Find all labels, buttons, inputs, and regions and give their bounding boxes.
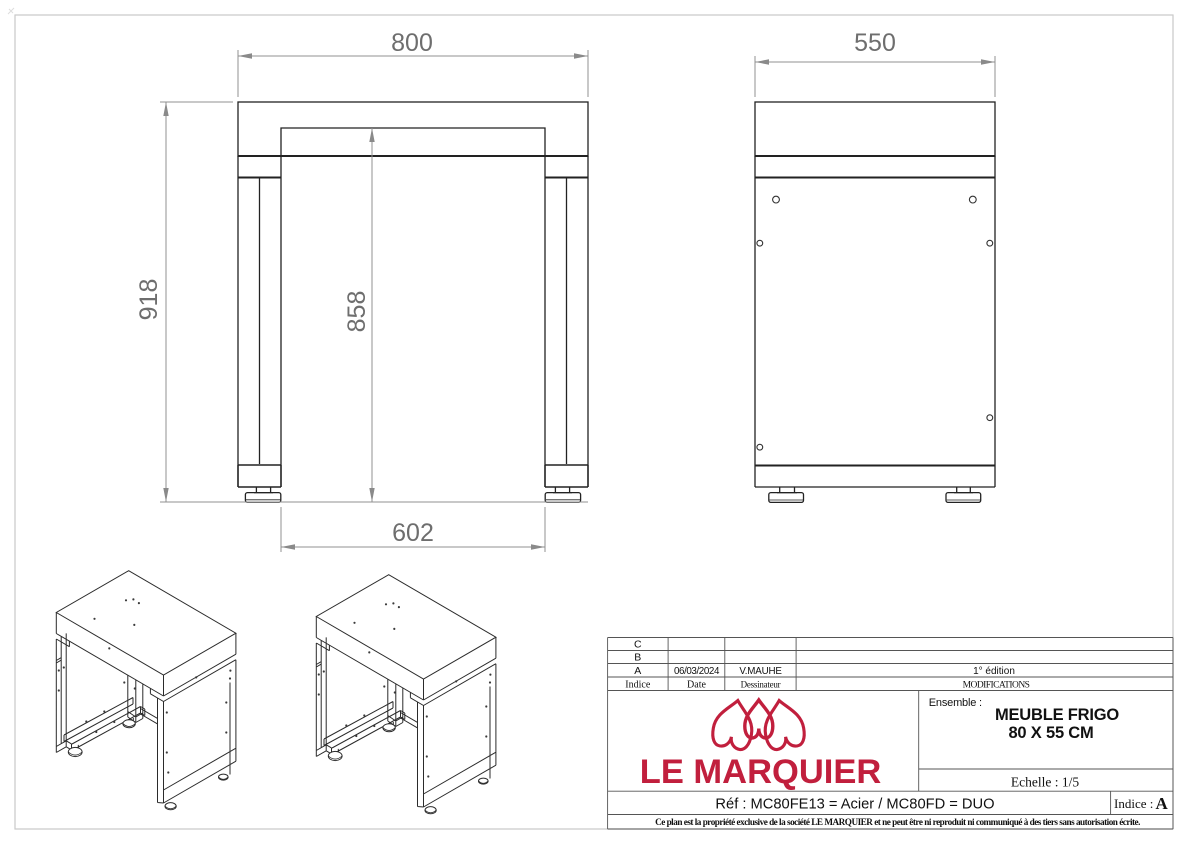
svg-text:MEUBLE FRIGO: MEUBLE FRIGO: [995, 706, 1119, 724]
svg-text:MODIFICATIONS: MODIFICATIONS: [963, 680, 1030, 690]
svg-text:Indice: Indice: [625, 680, 651, 691]
svg-text:06/03/2024: 06/03/2024: [674, 666, 720, 677]
svg-text:Dessinateur: Dessinateur: [741, 680, 781, 690]
svg-text:C: C: [634, 639, 642, 651]
svg-text:858: 858: [343, 291, 371, 333]
svg-text:800: 800: [391, 29, 433, 57]
svg-text:Echelle : 1/5: Echelle : 1/5: [1011, 775, 1079, 790]
svg-text:A: A: [634, 665, 641, 677]
svg-text:Date: Date: [687, 680, 706, 691]
svg-text:Indice :: Indice :: [1114, 796, 1153, 811]
svg-text:LE MARQUIER: LE MARQUIER: [640, 753, 882, 791]
svg-text:A: A: [1156, 794, 1169, 813]
svg-text:Ce plan est la propriété exclu: Ce plan est la propriété exclusive de la…: [655, 817, 1140, 827]
svg-text:Réf : MC80FE13 = Acier / MC80F: Réf : MC80FE13 = Acier / MC80FD = DUO: [715, 797, 994, 813]
svg-text:550: 550: [854, 29, 896, 57]
svg-text:80 X 55 CM: 80 X 55 CM: [1008, 724, 1093, 742]
svg-text:Ensemble :: Ensemble :: [929, 697, 982, 709]
svg-text:602: 602: [392, 519, 434, 547]
svg-text:V.MAUHE: V.MAUHE: [739, 666, 782, 677]
svg-text:B: B: [634, 652, 641, 664]
svg-text:1° édition: 1° édition: [973, 666, 1015, 677]
svg-text:918: 918: [135, 279, 163, 321]
